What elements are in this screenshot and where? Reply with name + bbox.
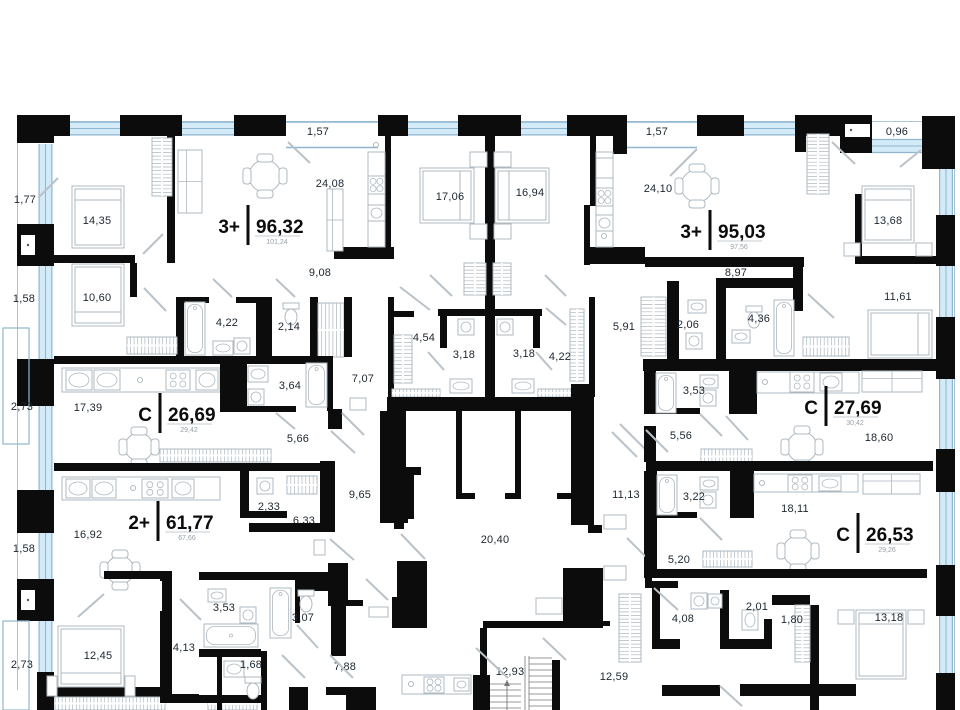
svg-text:20,40: 20,40 [481,534,510,546]
svg-text:С: С [836,525,850,546]
svg-text:95,03: 95,03 [718,222,766,243]
svg-text:1,68: 1,68 [240,659,262,671]
svg-text:61,77: 61,77 [166,513,214,534]
svg-text:7,07: 7,07 [352,373,374,385]
svg-text:С: С [138,405,152,426]
svg-text:1,58: 1,58 [13,543,35,555]
svg-text:3,07: 3,07 [292,612,314,624]
svg-text:5,66: 5,66 [287,433,309,445]
svg-text:2,73: 2,73 [11,659,33,671]
svg-text:17,39: 17,39 [74,402,103,414]
svg-text:3,53: 3,53 [683,385,705,397]
svg-text:1,58: 1,58 [13,293,35,305]
svg-text:12,45: 12,45 [84,650,113,662]
svg-text:12,59: 12,59 [600,671,629,683]
svg-text:18,11: 18,11 [781,503,809,515]
svg-text:2,73: 2,73 [11,401,33,413]
svg-text:30,42: 30,42 [846,420,864,427]
svg-text:27,69: 27,69 [834,398,882,419]
svg-text:17,06: 17,06 [436,191,465,203]
svg-text:16,92: 16,92 [74,529,103,541]
svg-text:12,93: 12,93 [496,666,525,678]
svg-text:5,91: 5,91 [613,321,635,333]
svg-text:26,69: 26,69 [168,405,216,426]
svg-text:24,10: 24,10 [644,183,673,195]
svg-text:С: С [804,398,818,419]
svg-text:13,68: 13,68 [874,215,903,227]
svg-text:3+: 3+ [218,217,240,238]
svg-text:2,06: 2,06 [677,319,699,331]
svg-text:97,56: 97,56 [730,244,748,251]
svg-text:3,53: 3,53 [213,602,235,614]
svg-text:26,53: 26,53 [866,525,914,546]
svg-text:3+: 3+ [680,222,702,243]
svg-text:4,54: 4,54 [413,332,435,344]
svg-text:9,65: 9,65 [349,489,371,501]
svg-text:2,14: 2,14 [278,321,300,333]
svg-text:24,08: 24,08 [316,178,345,190]
svg-text:4,36: 4,36 [748,313,770,325]
svg-text:96,32: 96,32 [256,217,304,238]
svg-text:29,42: 29,42 [180,427,198,434]
svg-text:16,94: 16,94 [516,187,545,199]
svg-text:11,61: 11,61 [884,291,912,303]
svg-text:14,35: 14,35 [83,215,112,227]
svg-text:8,97: 8,97 [725,267,747,279]
svg-text:11,13: 11,13 [612,489,640,501]
svg-text:3,22: 3,22 [683,491,705,503]
svg-text:3,18: 3,18 [453,349,475,361]
svg-text:10,60: 10,60 [83,292,112,304]
svg-text:2+: 2+ [128,513,150,534]
svg-text:0,96: 0,96 [886,126,908,138]
svg-text:1,57: 1,57 [307,126,329,138]
svg-text:4,13: 4,13 [173,642,195,654]
svg-text:4,08: 4,08 [672,613,694,625]
svg-text:13,18: 13,18 [875,612,904,624]
svg-text:1,80: 1,80 [781,614,803,626]
svg-text:3,18: 3,18 [513,348,535,360]
svg-text:101,24: 101,24 [266,239,288,246]
svg-text:4,22: 4,22 [216,317,238,329]
svg-text:1,57: 1,57 [646,126,668,138]
svg-text:5,20: 5,20 [668,554,690,566]
svg-text:4,22: 4,22 [549,351,571,363]
svg-text:2,33: 2,33 [258,501,280,513]
svg-text:1,77: 1,77 [14,194,36,206]
svg-text:2,01: 2,01 [746,601,768,613]
svg-text:9,08: 9,08 [309,267,331,279]
svg-text:3,64: 3,64 [279,380,301,392]
svg-text:5,56: 5,56 [670,430,692,442]
svg-text:29,26: 29,26 [878,547,896,554]
svg-text:67,66: 67,66 [178,535,196,542]
svg-text:18,60: 18,60 [865,432,894,444]
